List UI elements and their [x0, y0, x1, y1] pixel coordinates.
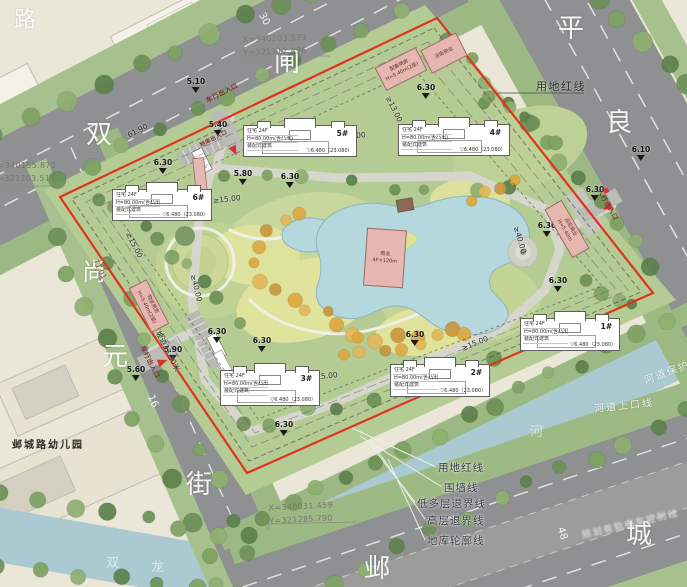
down-triangle-icon: [543, 231, 551, 237]
tower-roof-detail: [554, 311, 586, 321]
kindergarten-label: 邺城路幼儿园: [12, 436, 84, 451]
residential-tower: 住宅 24FH=80.00m(含凸出)装配式建筑3#▽6.480（23.080）: [220, 370, 320, 406]
road-name-char: 邺: [364, 548, 391, 585]
dimension-label: ≥15.00: [124, 230, 145, 259]
tower-roof-detail: [465, 360, 479, 367]
river-name-char: 龙: [151, 556, 164, 575]
tower-note: 住宅 24FH=80.00m(含凸出)装配式建筑: [246, 128, 298, 151]
down-triangle-icon: [637, 155, 645, 161]
annotation-overlay: 邺城路幼儿园 用地红线 路闸双平良尚元街邺城3016485.105.405.80…: [0, 0, 687, 587]
tower-roof-detail: [254, 363, 286, 373]
down-triangle-icon: [132, 375, 140, 381]
tower-number-tag: 5#: [337, 129, 349, 138]
tower-note: 住宅 24FH=80.00m(含凸出)装配式建筑: [401, 127, 452, 150]
road-width-label: 48: [555, 526, 569, 542]
ancillary-building: 沿街商业: [420, 32, 467, 73]
down-triangle-icon: [411, 340, 419, 346]
tower-roof-detail: [595, 314, 609, 321]
tower-note: 住宅 24FH=80.00m(含凸出)装配式建筑: [115, 192, 160, 215]
entrance-label: 车行出入口: [204, 80, 240, 105]
tower-roof-detail: [233, 366, 247, 373]
down-triangle-icon: [159, 168, 167, 174]
down-triangle-icon: [213, 337, 221, 343]
tower-roof-detail: [146, 182, 178, 192]
spot-elevation: 6.30: [275, 421, 294, 436]
river-line-label: 河道上口线: [593, 394, 654, 415]
entrance-label: 人行出入口: [596, 187, 622, 222]
tower-roof-detail: [125, 185, 139, 192]
tower-elevation: ▽6.480（23.080）: [307, 147, 353, 154]
residential-tower: 住宅 24FH=80.00m(含凸出)装配式建筑4#▽6.480（23.080）: [398, 124, 510, 156]
dimension-label: ≥15.00: [213, 193, 242, 205]
tower-elevation: ▽6.480（23.080）: [270, 396, 316, 403]
tower-number-tag: 3#: [301, 374, 313, 383]
river-name-char: 河: [530, 421, 543, 440]
tower-note: 住宅 24FH=80.00m(含凸出)装配式建筑: [393, 367, 438, 390]
tower-number-tag: 2#: [471, 368, 483, 377]
legend-item-3: 高层退界线: [427, 513, 485, 528]
tower-number-tag: 1#: [601, 322, 613, 331]
boundary-callout: 用地红线: [536, 78, 586, 94]
tower-roof-detail: [438, 117, 470, 127]
legend-item-4: 地库轮廓线: [427, 533, 485, 548]
road-width-label: 16: [145, 393, 160, 409]
tower-roof-detail: [484, 120, 498, 127]
road-name-char: 元: [102, 336, 129, 373]
river-name-char: 双: [106, 552, 119, 571]
spot-elevation: 5.80: [234, 170, 253, 185]
road-name-char: 良: [606, 102, 633, 139]
road-name-char: 路: [14, 2, 37, 34]
legend-item-0: 用地红线: [438, 460, 484, 475]
tower-roof-detail: [412, 120, 426, 127]
tower-number-tag: 4#: [490, 128, 502, 137]
down-triangle-icon: [280, 430, 288, 436]
spot-elevation: 6.30: [549, 277, 568, 292]
tower-elevation: ▽6.480（23.080）: [460, 146, 506, 153]
tower-roof-detail: [331, 121, 345, 128]
road-name-char: 街: [186, 464, 213, 501]
dimension-label: ≥40.00: [189, 273, 204, 302]
down-triangle-icon: [239, 179, 247, 185]
dimension-label: ≥15.00: [460, 334, 489, 353]
down-triangle-icon: [554, 286, 562, 292]
spot-elevation: 6.30: [281, 173, 300, 188]
tower-elevation: ▽6.480（23.080）: [162, 211, 208, 218]
down-triangle-icon: [192, 87, 200, 93]
spot-elevation: 6.30: [208, 328, 227, 343]
ancillary-building: 商业4F×120m: [363, 228, 407, 289]
down-triangle-icon: [422, 93, 430, 99]
residential-tower: 住宅 24FH=80.00m(含凸出)装配式建筑1#▽6.480（23.080）: [520, 318, 620, 351]
residential-tower: 住宅 24FH=80.00m(含凸出)装配式建筑6#▽6.480（23.080）: [112, 189, 212, 221]
road-name-char: 双: [86, 114, 113, 151]
coordinate-label: X=340203.573Y=321312.496: [243, 32, 308, 60]
tower-number-tag: 6#: [193, 193, 205, 202]
residential-tower: 住宅 24FH=80.00m(含凸出)装配式建筑2#▽6.480（23.080）: [390, 364, 490, 397]
coordinate-label: X=340031.459Y=321285.790: [268, 499, 333, 528]
spot-elevation: 6.30: [154, 159, 173, 174]
tower-note: 住宅 24FH=80.00m(含凸出)装配式建筑: [223, 373, 268, 396]
coordinate-label: X=340155.870Y=321203.514: [0, 160, 56, 186]
spot-elevation: 6.10: [632, 146, 651, 161]
dimension-label: 61.90: [126, 122, 149, 140]
dimension-label: ≥40.00: [512, 225, 529, 254]
down-triangle-icon: [258, 346, 266, 352]
tower-roof-detail: [257, 121, 271, 128]
spot-elevation: 5.60: [127, 366, 146, 381]
tower-roof-detail: [403, 360, 417, 367]
ancillary-building: 物业用房H=5.40m(2层): [129, 279, 170, 333]
legend-item-1: 围墙线: [444, 480, 479, 495]
tower-roof-detail: [424, 357, 456, 367]
down-triangle-icon: [286, 182, 294, 188]
tower-roof-detail: [284, 118, 316, 128]
residential-tower: 住宅 24FH=80.00m(含凸出)装配式建筑5#▽6.480（23.080）: [243, 125, 357, 157]
spot-elevation: 6.30: [417, 84, 436, 99]
tower-roof-detail: [533, 314, 547, 321]
tower-elevation: ▽6.480（23.080）: [570, 341, 616, 348]
tower-note: 住宅 24FH=80.00m(含凸出)装配式建筑: [523, 321, 568, 344]
tower-roof-detail: [187, 185, 201, 192]
dimension-label: ≥13.00: [384, 95, 404, 124]
tower-elevation: ▽6.480（23.080）: [440, 387, 486, 394]
legend-item-2: 低多层退界线: [417, 496, 486, 511]
road-width-label: 30: [256, 11, 272, 27]
spot-elevation: 6.30: [253, 337, 272, 352]
spot-elevation: 5.10: [187, 78, 206, 93]
spot-elevation: 6.30: [406, 331, 425, 346]
tower-roof-detail: [295, 366, 309, 373]
river-line-label: 河道保护线: [641, 352, 687, 387]
road-name-char: 平: [558, 8, 585, 45]
site-plan-canvas: 邺城路幼儿园 用地红线 路闸双平良尚元街邺城3016485.105.405.80…: [0, 0, 687, 587]
